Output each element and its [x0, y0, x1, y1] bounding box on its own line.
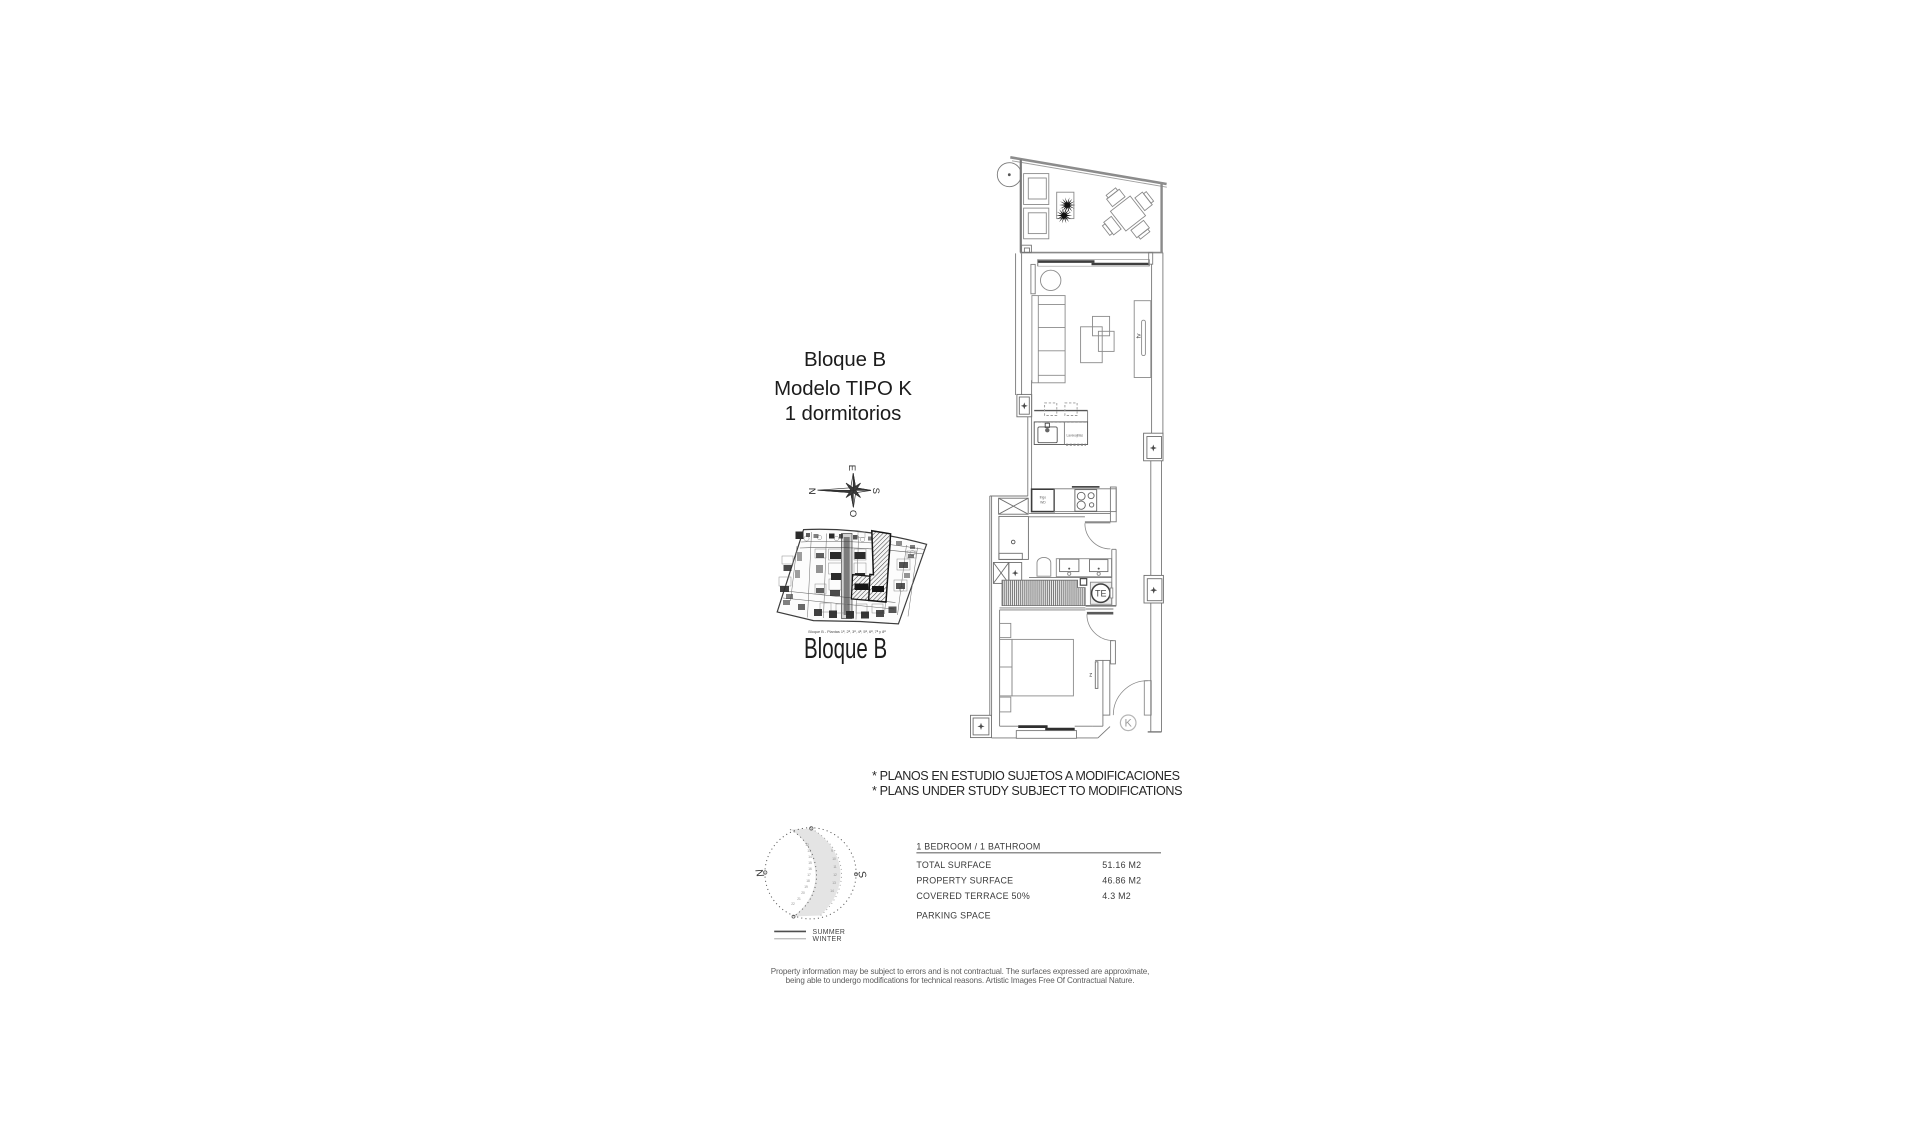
svg-text:12: 12 [805, 843, 809, 847]
svg-text:17: 17 [807, 873, 811, 877]
svg-text:tv: tv [1136, 333, 1143, 339]
svg-text:S: S [870, 488, 881, 494]
svg-text:13: 13 [807, 849, 811, 853]
svg-text:12: 12 [833, 873, 837, 877]
svg-text:20: 20 [801, 891, 805, 895]
svg-text:TOTAL SURFACE: TOTAL SURFACE [916, 860, 991, 870]
svg-text:WINTER: WINTER [813, 936, 842, 943]
svg-text:15: 15 [808, 861, 812, 865]
svg-text:14: 14 [830, 889, 834, 893]
svg-text:WD: WD [1040, 500, 1046, 504]
svg-text:Bloque B: Bloque B [804, 349, 886, 371]
svg-text:K: K [1125, 718, 1133, 730]
svg-text:* PLANOS EN ESTUDIO SUJETOS A: * PLANOS EN ESTUDIO SUJETOS A MODIFICACI… [872, 769, 1180, 783]
svg-text:14: 14 [808, 855, 812, 859]
svg-text:PROPERTY SURFACE: PROPERTY SURFACE [916, 876, 1013, 886]
svg-text:COVERED TERRACE 50%: COVERED TERRACE 50% [916, 891, 1030, 901]
svg-text:frigo: frigo [1040, 496, 1047, 500]
svg-text:1 dormitorios: 1 dormitorios [785, 403, 902, 425]
svg-text:21: 21 [797, 897, 801, 901]
svg-text:Bloque B: Bloque B [804, 634, 887, 665]
svg-text:51.16 M2: 51.16 M2 [1102, 860, 1141, 870]
svg-text:4.3 M2: 4.3 M2 [1102, 891, 1131, 901]
svg-text:Modelo TIPO K: Modelo TIPO K [774, 378, 912, 400]
svg-text:18: 18 [806, 879, 810, 883]
svg-text:Lavavajillas: Lavavajillas [1067, 433, 1084, 437]
svg-text:* PLANS UNDER STUDY SUBJECT TO: * PLANS UNDER STUDY SUBJECT TO MODIFICAT… [872, 784, 1182, 798]
svg-text:TE: TE [1095, 589, 1107, 599]
svg-text:16: 16 [808, 867, 812, 871]
svg-text:being able to undergo modifica: being able to undergo modifications for … [786, 976, 1135, 985]
svg-text:10: 10 [832, 857, 836, 861]
svg-text:13: 13 [832, 881, 836, 885]
svg-text:22: 22 [791, 902, 795, 906]
svg-text:PARKING SPACE: PARKING SPACE [916, 911, 990, 921]
svg-text:1 BEDROOM / 1 BATHROOM: 1 BEDROOM / 1 BATHROOM [916, 841, 1040, 851]
svg-text:N: N [806, 488, 817, 495]
svg-text:11: 11 [833, 865, 837, 869]
svg-text:Property information may be su: Property information may be subject to e… [771, 967, 1150, 976]
svg-text:O: O [847, 510, 858, 517]
svg-text:19: 19 [804, 885, 808, 889]
svg-text:9: 9 [831, 849, 833, 853]
svg-text:z: z [1089, 673, 1092, 679]
svg-text:E: E [846, 465, 857, 471]
svg-text:SUMMER: SUMMER [813, 929, 846, 936]
svg-text:46.86 M2: 46.86 M2 [1102, 876, 1141, 886]
